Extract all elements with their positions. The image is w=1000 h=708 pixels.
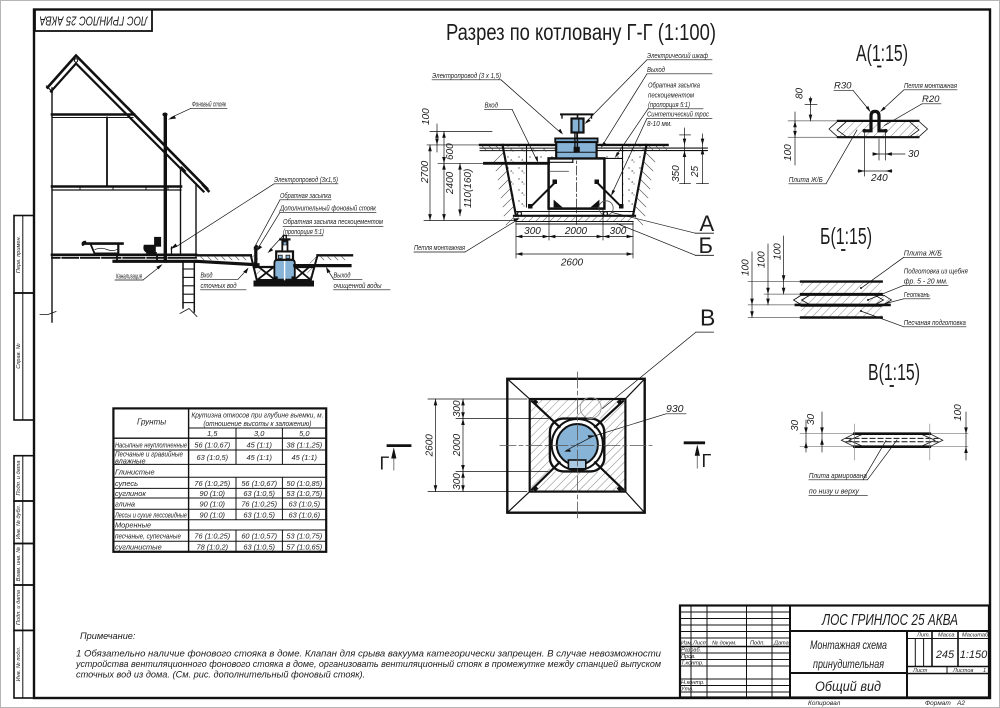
svg-text:1 Обязательно наличие фонового: 1 Обязательно наличие фонового стояка в …	[76, 649, 661, 659]
svg-text:Г: Г	[380, 454, 390, 474]
svg-text:56 (1:0,67): 56 (1:0,67)	[194, 441, 230, 450]
svg-text:100: 100	[783, 144, 794, 161]
svg-text:30: 30	[790, 419, 801, 431]
svg-text:56 (1:0,67): 56 (1:0,67)	[241, 479, 277, 488]
svg-text:(отношение высоты к заложению): (отношение высоты к заложению)	[203, 421, 311, 428]
svg-text:600: 600	[445, 143, 456, 160]
svg-text:Пров.: Пров.	[681, 654, 696, 660]
svg-text:Петля монтажная: Петля монтажная	[414, 243, 465, 252]
svg-text:80: 80	[795, 87, 806, 99]
svg-text:76 (1:0,25): 76 (1:0,25)	[194, 479, 230, 488]
svg-text:Справ. №: Справ. №	[16, 343, 22, 368]
svg-text:63 (1:0,5): 63 (1:0,5)	[243, 489, 275, 498]
svg-text:45 (1:1): 45 (1:1)	[246, 453, 272, 462]
svg-text:90 (1:0): 90 (1:0)	[200, 489, 226, 498]
svg-text:245: 245	[935, 649, 955, 661]
svg-text:930: 930	[666, 403, 684, 415]
svg-text:Масштаб: Масштаб	[962, 633, 989, 639]
svg-text:63 (1:0,5): 63 (1:0,5)	[288, 500, 320, 509]
svg-text:Утв.: Утв.	[680, 687, 694, 693]
svg-text:сточных вод: сточных вод	[201, 281, 237, 290]
svg-text:R30: R30	[834, 81, 852, 92]
svg-text:2600: 2600	[560, 258, 584, 269]
svg-text:Моренные: Моренные	[115, 521, 151, 530]
svg-text:фр. 5 - 20 мм.: фр. 5 - 20 мм.	[904, 277, 948, 286]
svg-text:Лист: Лист	[912, 668, 928, 674]
svg-text:Подготовка из щебня: Подготовка из щебня	[904, 267, 968, 276]
svg-text:Фоновый стояк: Фоновый стояк	[192, 100, 226, 109]
svg-text:2000: 2000	[564, 226, 588, 237]
svg-text:30: 30	[908, 149, 920, 160]
svg-text:Инв. № подл.: Инв. № подл.	[16, 647, 22, 682]
svg-text:Лит.: Лит.	[916, 633, 930, 639]
svg-text:1: 1	[983, 668, 986, 674]
svg-text:76 (1:0,25): 76 (1:0,25)	[241, 500, 277, 509]
svg-text:В(1:15): В(1:15)	[868, 359, 920, 385]
svg-text:38 (1:1,25): 38 (1:1,25)	[286, 441, 322, 450]
svg-text:Подп. и дата: Подп. и дата	[16, 590, 22, 625]
svg-text:Подп.: Подп.	[750, 641, 765, 647]
svg-text:устройства вентиляционного фон: устройства вентиляционного фонового стоя…	[75, 659, 662, 669]
svg-text:Петля монтажная: Петля монтажная	[904, 81, 957, 90]
svg-text:45 (1:1): 45 (1:1)	[292, 453, 318, 462]
svg-text:Грунты: Грунты	[137, 418, 166, 427]
svg-text:240: 240	[870, 173, 888, 184]
svg-text:Копировал: Копировал	[808, 700, 841, 707]
svg-text:8-10 мм.: 8-10 мм.	[647, 119, 672, 128]
svg-text:Выход: Выход	[334, 271, 351, 280]
svg-text:100: 100	[741, 259, 752, 276]
svg-text:Электропровод (3 х 1,5): Электропровод (3 х 1,5)	[432, 71, 501, 80]
svg-text:Выход: Выход	[647, 65, 665, 74]
svg-text:60 (1:0,57): 60 (1:0,57)	[241, 532, 277, 541]
svg-text:Синтетический трос: Синтетический трос	[647, 110, 709, 119]
svg-text:100: 100	[421, 108, 432, 125]
svg-text:25: 25	[690, 165, 701, 178]
svg-text:Изм.: Изм.	[681, 641, 693, 647]
svg-text:63 (1:0,5): 63 (1:0,5)	[243, 510, 275, 519]
svg-text:78 (1:0,2): 78 (1:0,2)	[196, 542, 228, 551]
svg-text:принудительная: принудительная	[813, 659, 884, 671]
svg-text:Лист: Лист	[692, 641, 708, 647]
svg-text:ЛОС ГРИНЛОС 25 АКВА: ЛОС ГРИНЛОС 25 АКВА	[39, 14, 148, 28]
svg-text:суглинок: суглинок	[115, 489, 146, 498]
svg-text:ЛОС ГРИНЛОС 25 АКВА: ЛОС ГРИНЛОС 25 АКВА	[821, 612, 958, 629]
svg-text:Листов: Листов	[952, 668, 973, 674]
svg-text:63 (1:0,5): 63 (1:0,5)	[196, 453, 228, 462]
svg-text:Инв. № дубл.: Инв. № дубл.	[16, 505, 22, 539]
svg-text:1:150: 1:150	[960, 649, 988, 661]
svg-text:300: 300	[524, 226, 541, 237]
svg-text:супесь: супесь	[115, 479, 138, 488]
svg-text:А(1:15): А(1:15)	[856, 40, 908, 66]
svg-text:Лессы и сухие лессовидные: Лессы и сухие лессовидные	[114, 510, 187, 519]
svg-text:100: 100	[953, 404, 964, 421]
svg-text:Электропровод (3х1,5): Электропровод (3х1,5)	[274, 175, 338, 184]
svg-text:(пропорция 5:1): (пропорция 5:1)	[283, 227, 324, 236]
svg-text:350: 350	[671, 165, 682, 182]
svg-text:Глинистые: Глинистые	[115, 468, 155, 477]
svg-text:2400: 2400	[445, 171, 456, 195]
svg-text:влажные: влажные	[115, 457, 146, 466]
svg-text:53 (1:0,75): 53 (1:0,75)	[286, 489, 322, 498]
svg-text:3,0: 3,0	[254, 429, 265, 438]
svg-text:Перв. примен.: Перв. примен.	[16, 236, 22, 273]
svg-text:Примечание:: Примечание:	[80, 631, 136, 641]
svg-text:Крутизна откосов при глубине в: Крутизна откосов при глубине выемки, м.	[191, 412, 323, 420]
svg-text:Дополнительный фоновый стояк: Дополнительный фоновый стояк	[279, 204, 376, 213]
svg-text:Электрический шкаф: Электрический шкаф	[647, 51, 708, 60]
svg-text:по низу и верху: по низу и верху	[809, 487, 860, 496]
svg-text:53 (1:0,75): 53 (1:0,75)	[286, 532, 322, 541]
svg-text:2600: 2600	[425, 434, 436, 458]
svg-text:песчаные, супесчаные: песчаные, супесчаные	[115, 532, 181, 541]
svg-text:пескоцементом: пескоцементом	[648, 91, 695, 100]
svg-text:Взам. инв. №: Взам. инв. №	[16, 547, 22, 582]
svg-text:Б(1:15): Б(1:15)	[820, 223, 872, 249]
svg-text:очищенной воды: очищенной воды	[334, 281, 382, 290]
svg-text:Н.контр.: Н.контр.	[681, 680, 705, 686]
svg-text:100: 100	[757, 251, 768, 268]
svg-text:Обратная засыпка: Обратная засыпка	[280, 191, 331, 200]
svg-text:Геоткань: Геоткань	[904, 290, 930, 299]
svg-text:Б: Б	[699, 233, 713, 258]
svg-text:Дата: Дата	[773, 641, 789, 647]
svg-text:300: 300	[610, 226, 627, 237]
svg-text:45 (1:1): 45 (1:1)	[246, 441, 272, 450]
svg-text:суглинистые: суглинистые	[115, 542, 162, 551]
svg-text:Разраб.: Разраб.	[681, 648, 701, 654]
svg-text:сточных вод из дома. (См. рис.: сточных вод из дома. (См. рис. дополните…	[76, 670, 365, 680]
svg-text:Насыпные неуплотненные: Насыпные неуплотненные	[115, 441, 187, 450]
svg-text:63 (1:0,5): 63 (1:0,5)	[243, 542, 275, 551]
svg-text:Масса: Масса	[938, 633, 955, 639]
svg-text:2000: 2000	[452, 433, 463, 457]
svg-text:Г: Г	[702, 451, 712, 471]
svg-text:Разрез по котловану Г-Г (1:100: Разрез по котловану Г-Г (1:100)	[446, 19, 716, 45]
svg-text:Обратная засыпка: Обратная засыпка	[648, 81, 700, 90]
svg-text:5,0: 5,0	[299, 429, 310, 438]
svg-text:А2: А2	[956, 700, 965, 707]
svg-text:Песчаная подготовка: Песчаная подготовка	[904, 318, 966, 327]
svg-text:(пропорция 5:1): (пропорция 5:1)	[648, 100, 690, 109]
svg-text:300: 300	[452, 473, 463, 490]
svg-text:110(160): 110(160)	[463, 169, 474, 208]
svg-text:Плита армирована: Плита армирована	[809, 471, 867, 480]
svg-text:Вход: Вход	[485, 101, 499, 110]
svg-text:1,5: 1,5	[207, 429, 218, 438]
svg-text:90 (1:0): 90 (1:0)	[200, 500, 226, 509]
svg-text:Монтажная схема: Монтажная схема	[810, 640, 887, 652]
svg-text:глина: глина	[115, 500, 135, 509]
svg-text:R20: R20	[922, 94, 940, 105]
svg-text:2700: 2700	[420, 160, 431, 184]
svg-text:Канализация: Канализация	[116, 272, 142, 281]
svg-text:Обратная засыпка пескоцементом: Обратная засыпка пескоцементом	[283, 217, 384, 226]
svg-text:Подп. и дата: Подп. и дата	[16, 460, 22, 495]
svg-text:63 (1:0,6): 63 (1:0,6)	[288, 510, 320, 519]
svg-text:57 (1:0,65): 57 (1:0,65)	[286, 542, 322, 551]
svg-text:В: В	[700, 305, 715, 331]
svg-text:Т.контр.: Т.контр.	[681, 661, 704, 667]
svg-text:Плита Ж/Б: Плита Ж/Б	[904, 249, 942, 258]
svg-text:Плита Ж/Б: Плита Ж/Б	[789, 175, 823, 184]
svg-text:30: 30	[806, 413, 817, 425]
svg-text:50 (1:0,85): 50 (1:0,85)	[286, 479, 322, 488]
svg-text:100: 100	[773, 243, 784, 260]
svg-text:300: 300	[452, 400, 463, 417]
svg-text:90 (1:0): 90 (1:0)	[200, 510, 226, 519]
svg-text:№ докум.: № докум.	[712, 641, 737, 647]
svg-text:76 (1:0,25): 76 (1:0,25)	[194, 532, 230, 541]
svg-text:Общий вид: Общий вид	[815, 679, 881, 694]
svg-text:Формат: Формат	[925, 700, 951, 707]
svg-text:Вход: Вход	[201, 271, 213, 280]
